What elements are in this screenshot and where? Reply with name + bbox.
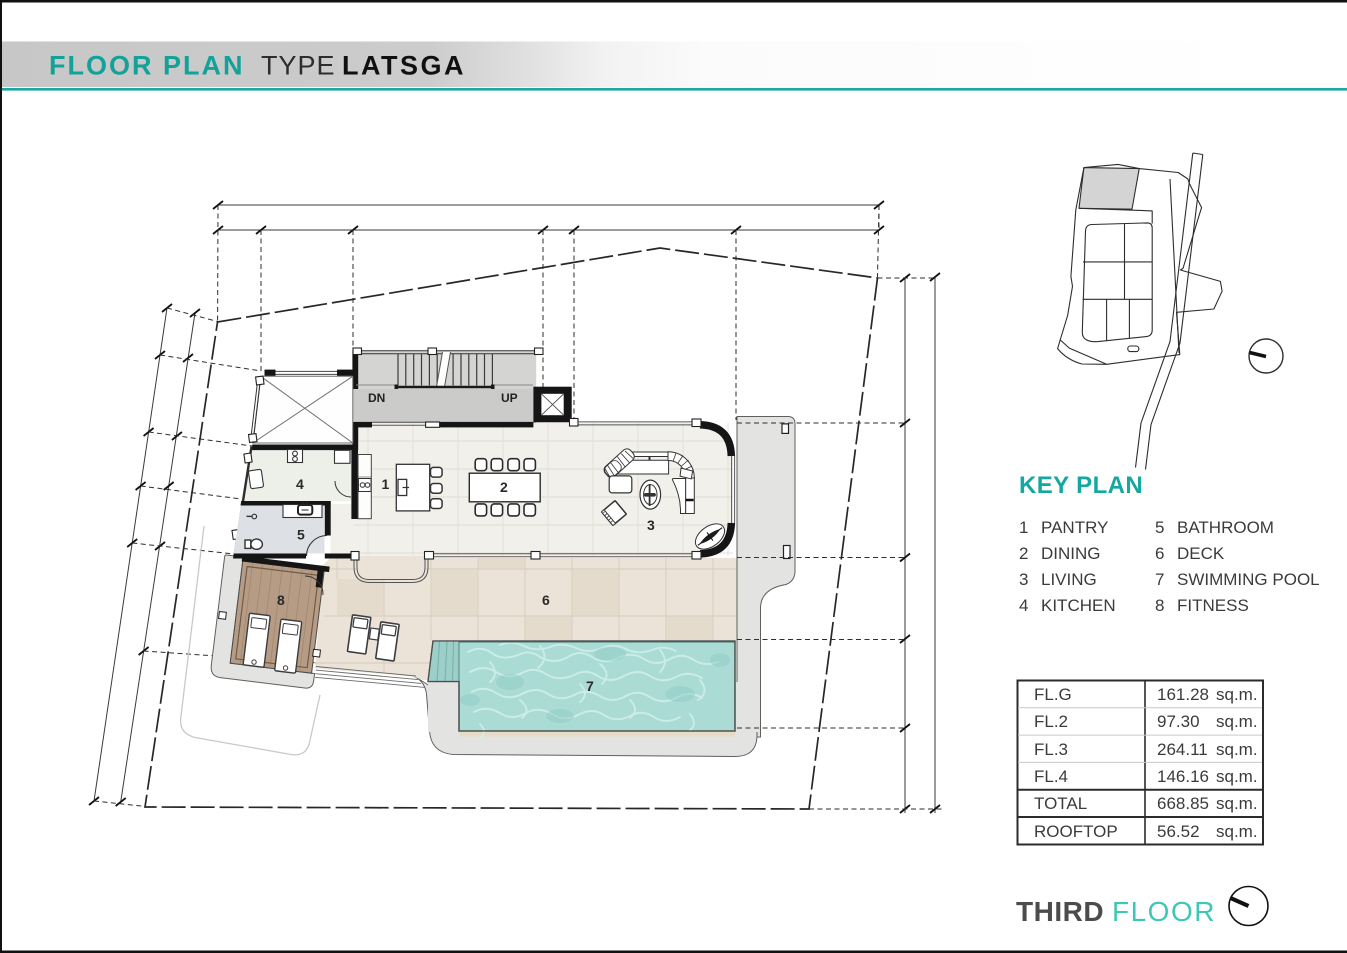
svg-text:8: 8: [277, 592, 285, 608]
svg-text:1: 1: [382, 476, 390, 492]
svg-text:TOTAL: TOTAL: [1034, 794, 1087, 813]
svg-text:UP: UP: [501, 391, 518, 405]
svg-text:LIVING: LIVING: [1041, 570, 1097, 589]
svg-text:sq.m.: sq.m.: [1216, 712, 1258, 731]
svg-text:2: 2: [500, 479, 508, 495]
svg-text:DN: DN: [368, 391, 385, 405]
svg-text:FLOOR: FLOOR: [1112, 896, 1216, 927]
svg-text:FL.G: FL.G: [1034, 685, 1072, 704]
svg-text:ROOFTOP: ROOFTOP: [1034, 822, 1118, 841]
svg-text:BATHROOM: BATHROOM: [1177, 518, 1274, 537]
svg-text:5: 5: [297, 527, 305, 543]
svg-text:PANTRY: PANTRY: [1041, 518, 1108, 537]
svg-text:4: 4: [296, 476, 304, 492]
svg-text:DINING: DINING: [1041, 544, 1101, 563]
svg-text:LATSGA: LATSGA: [342, 51, 466, 81]
svg-text:FL.2: FL.2: [1034, 712, 1068, 731]
svg-text:8: 8: [1155, 596, 1164, 615]
svg-text:3: 3: [1019, 570, 1028, 589]
svg-text:sq.m.: sq.m.: [1216, 822, 1258, 841]
svg-text:264.11: 264.11: [1157, 740, 1208, 759]
svg-text:146.16: 146.16: [1157, 767, 1209, 786]
svg-text:FLOOR PLAN: FLOOR PLAN: [49, 51, 245, 81]
svg-text:2: 2: [1019, 544, 1028, 563]
svg-text:sq.m.: sq.m.: [1216, 740, 1258, 759]
svg-text:5: 5: [1155, 518, 1164, 537]
svg-text:668.85: 668.85: [1157, 794, 1209, 813]
svg-text:6: 6: [1155, 544, 1164, 563]
svg-text:KITCHEN: KITCHEN: [1041, 596, 1116, 615]
svg-text:KEY PLAN: KEY PLAN: [1019, 472, 1143, 499]
svg-text:7: 7: [1155, 570, 1164, 589]
svg-text:sq.m.: sq.m.: [1216, 685, 1258, 704]
svg-text:FL.4: FL.4: [1034, 767, 1068, 786]
svg-text:SWIMMING POOL: SWIMMING POOL: [1177, 570, 1320, 589]
svg-text:6: 6: [542, 592, 550, 608]
svg-text:161.28: 161.28: [1157, 685, 1209, 704]
svg-text:sq.m.: sq.m.: [1216, 767, 1258, 786]
svg-text:7: 7: [586, 678, 594, 694]
svg-text:1: 1: [1019, 518, 1028, 537]
svg-text:sq.m.: sq.m.: [1216, 794, 1258, 813]
svg-text:TYPE: TYPE: [261, 51, 336, 81]
svg-text:DECK: DECK: [1177, 544, 1225, 563]
svg-text:FITNESS: FITNESS: [1177, 596, 1249, 615]
svg-text:3: 3: [647, 517, 655, 533]
svg-text:4: 4: [1019, 596, 1028, 615]
svg-text:97.30: 97.30: [1157, 712, 1200, 731]
svg-text:THIRD: THIRD: [1016, 896, 1104, 927]
svg-text:FL.3: FL.3: [1034, 740, 1068, 759]
svg-text:56.52: 56.52: [1157, 822, 1200, 841]
